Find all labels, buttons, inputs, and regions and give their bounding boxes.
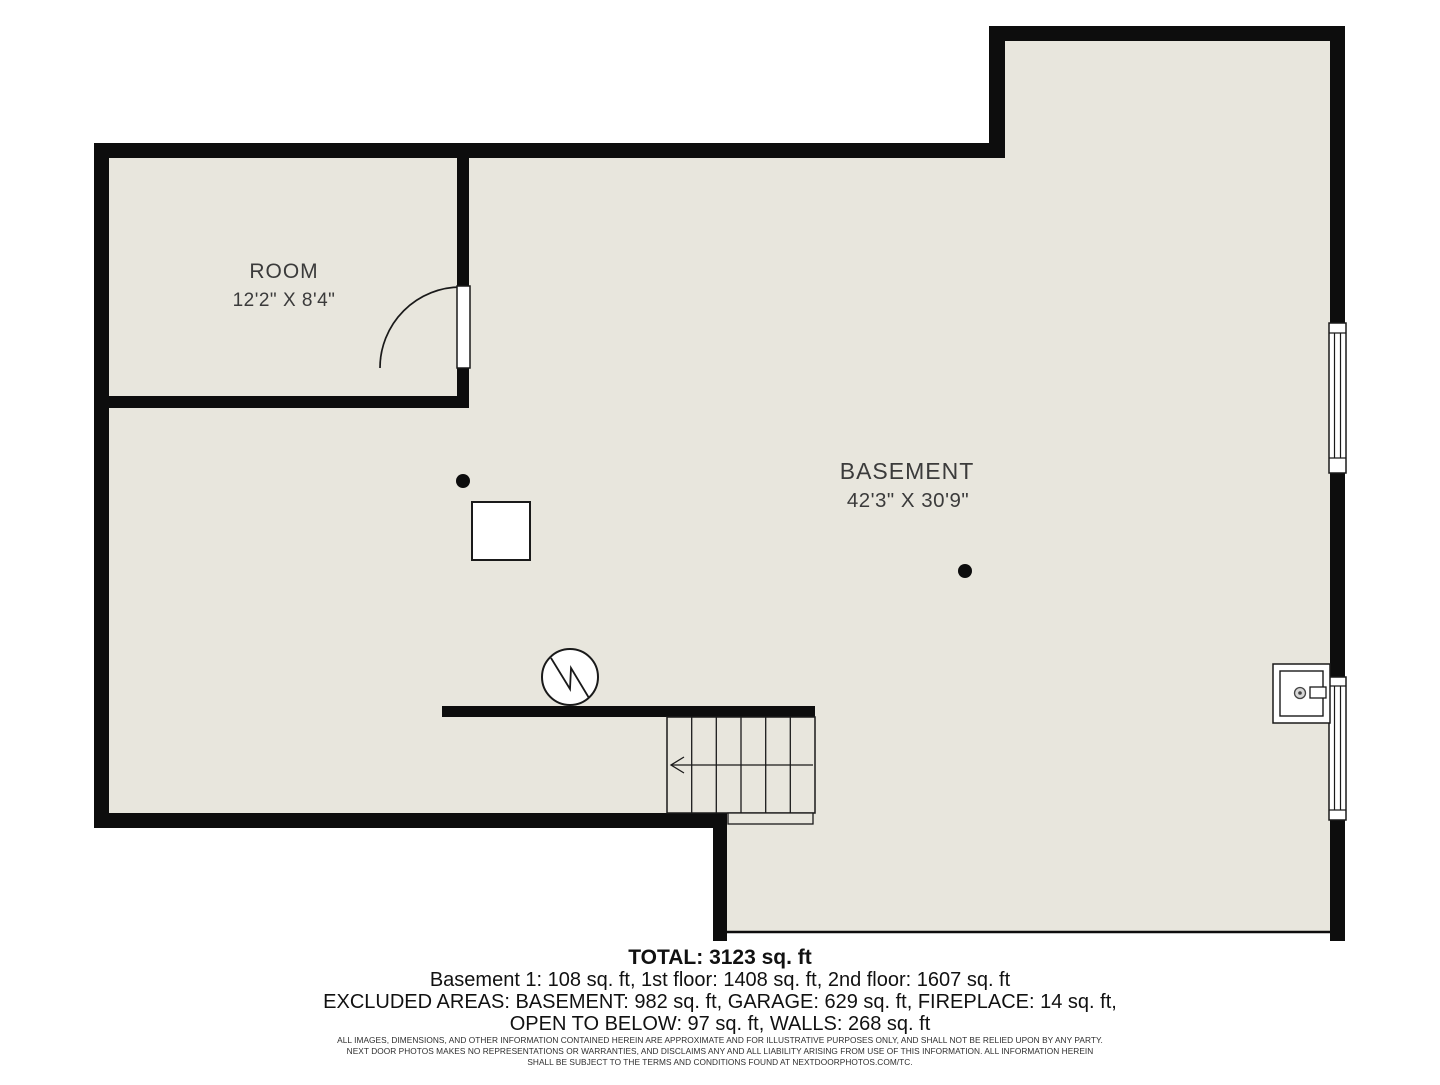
room-label: ROOM — [249, 260, 318, 283]
wall-room-bottom — [94, 396, 469, 408]
floor-plan: ROOM 12'2" X 8'4" BASEMENT 42'3" X 30'9" — [0, 0, 1440, 1085]
wall-top-left — [94, 143, 1005, 158]
wall-room-right-upper — [457, 143, 469, 286]
disclaimer-line-1: ALL IMAGES, DIMENSIONS, AND OTHER INFORM… — [0, 1035, 1440, 1046]
utility-sink — [1273, 664, 1330, 723]
sink-faucet — [1310, 687, 1326, 698]
floor-areas-line: Basement 1: 108 sq. ft, 1st floor: 1408 … — [0, 969, 1440, 991]
wall-step-vertical — [989, 26, 1005, 158]
disclaimer-line-3: SHALL BE SUBJECT TO THE TERMS AND CONDIT… — [0, 1057, 1440, 1068]
door-leaf — [457, 286, 470, 368]
stairs — [667, 717, 815, 824]
support-post-dot — [958, 564, 972, 578]
area-summary: TOTAL: 3123 sq. ft Basement 1: 108 sq. f… — [0, 946, 1440, 1035]
support-post-dot — [456, 474, 470, 488]
excluded-areas-line-2: OPEN TO BELOW: 97 sq. ft, WALLS: 268 sq.… — [0, 1013, 1440, 1035]
excluded-areas-line-1: EXCLUDED AREAS: BASEMENT: 982 sq. ft, GA… — [0, 991, 1440, 1013]
floor-top-right — [1005, 41, 1330, 158]
furnace-symbol — [542, 649, 598, 705]
wall-bottom-left — [94, 813, 727, 828]
wall-top-right — [989, 26, 1345, 41]
wall-stair-vertical — [713, 813, 727, 941]
wall-left — [94, 143, 109, 828]
disclaimer: ALL IMAGES, DIMENSIONS, AND OTHER INFORM… — [0, 1035, 1440, 1067]
disclaimer-line-2: NEXT DOOR PHOTOS MAKES NO REPRESENTATION… — [0, 1046, 1440, 1057]
stairs-lower-landing — [728, 813, 813, 824]
utility-column-square — [472, 502, 530, 560]
window-upper — [1329, 323, 1346, 473]
window-lower — [1329, 677, 1346, 820]
basement-dimensions: 42'3" X 30'9" — [847, 489, 969, 512]
bottom-opening — [727, 932, 1330, 942]
basement-label: BASEMENT — [840, 458, 975, 484]
wall-half — [442, 706, 815, 717]
total-area: TOTAL: 3123 sq. ft — [0, 946, 1440, 969]
room-dimensions: 12'2" X 8'4" — [233, 290, 336, 311]
floor-bottom-right — [727, 813, 1330, 932]
